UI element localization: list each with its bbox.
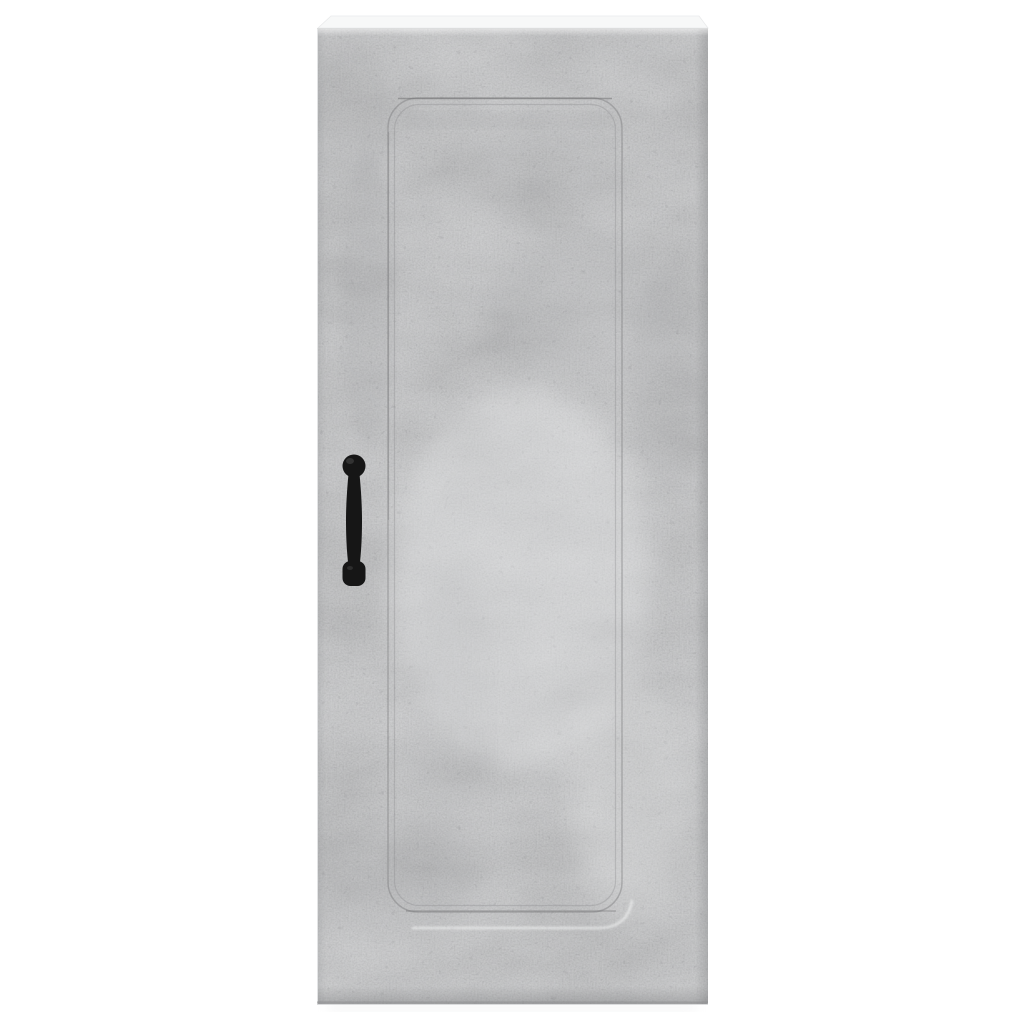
handle-top-highlight (346, 458, 354, 464)
handle-bottom-knob (343, 561, 366, 586)
cabinet-product-photo (0, 0, 1024, 1024)
handle-shaft (346, 474, 362, 562)
concrete-texture-group (305, 28, 708, 1004)
photo-canvas (0, 0, 1024, 1024)
panel-top-bevel-shadow (400, 112, 612, 128)
floor-shadow (328, 1004, 696, 1011)
cabinet-top-surface (318, 16, 708, 28)
handle-bottom-highlight (347, 566, 353, 570)
cabinet-illustration (0, 0, 1024, 1024)
handle-top-knob (343, 455, 366, 478)
